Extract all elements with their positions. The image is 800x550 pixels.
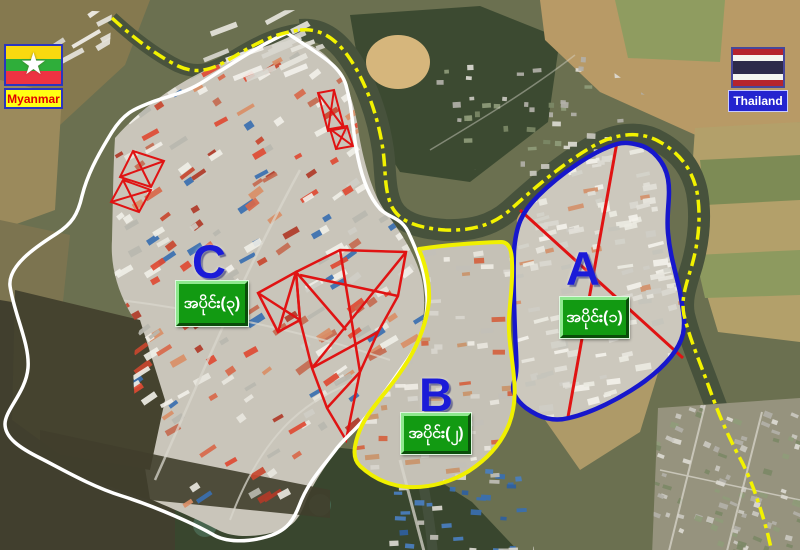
myanmar-flag: ★ xyxy=(4,44,63,86)
thailand-label: Thailand xyxy=(728,90,788,112)
area-c-badge: အပိုင်း(၃) xyxy=(176,281,248,326)
thailand-flag xyxy=(731,47,785,88)
thailand-flag-stripe xyxy=(733,80,783,86)
area-c-letter: C xyxy=(192,238,226,285)
area-b-letter: B xyxy=(419,371,453,418)
thailand-flag-stripe xyxy=(733,61,783,73)
area-a-badge: အပိုင်း(၁) xyxy=(560,297,629,338)
area-a-letter: A xyxy=(566,245,600,292)
star-icon: ★ xyxy=(6,46,61,84)
satellite-map: ★ Myanmar Thailand A B C အပိုင်း(၁) အပို… xyxy=(0,0,800,550)
area-b-badge: အပိုင်း(၂) xyxy=(401,413,471,454)
map-graphics xyxy=(0,0,800,550)
myanmar-label: Myanmar xyxy=(4,88,63,109)
